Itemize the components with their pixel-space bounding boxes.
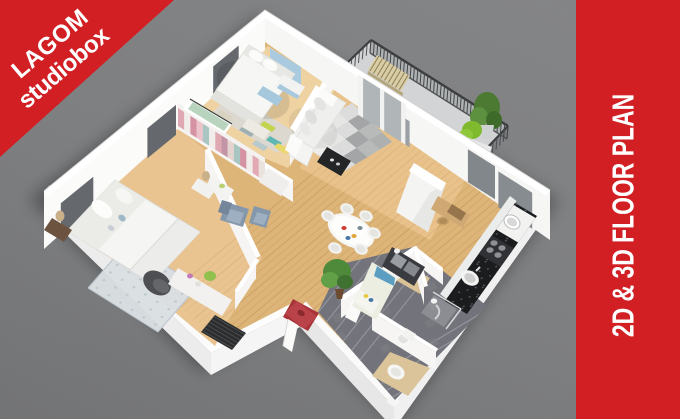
svg-text:2D & 3D FLOOR PLAN: 2D & 3D FLOOR PLAN — [605, 94, 640, 337]
